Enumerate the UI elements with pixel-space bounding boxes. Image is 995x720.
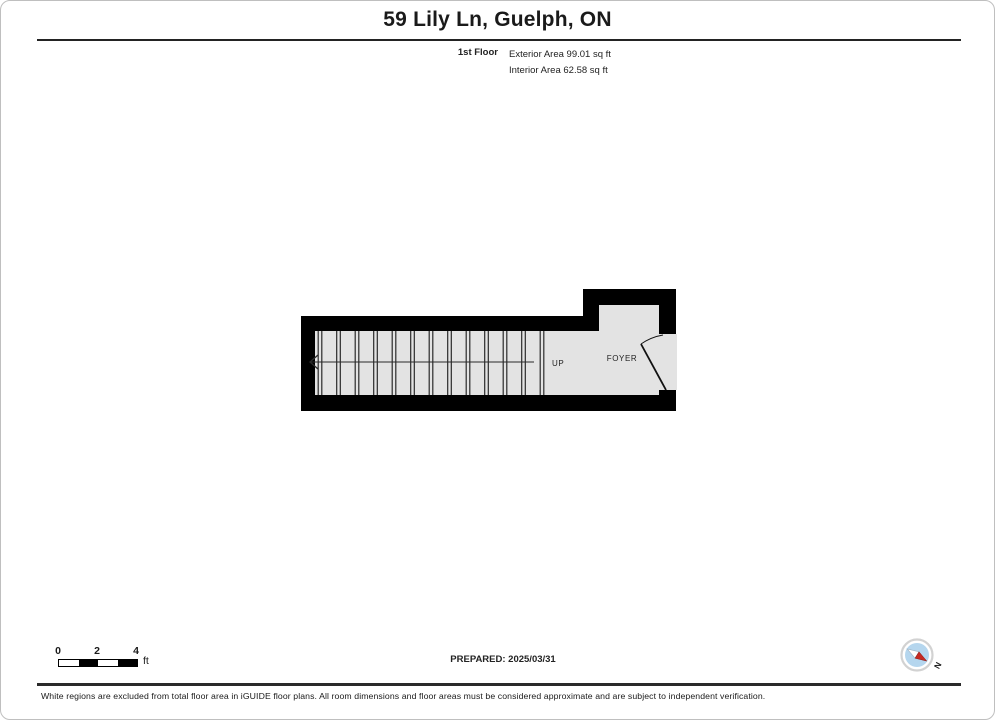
scale-segment — [98, 660, 118, 666]
foyer-label: FOYER — [607, 354, 638, 363]
header-divider — [37, 39, 961, 41]
floorplan-page: 59 Lily Ln, Guelph, ON 1st Floor Exterio… — [0, 0, 995, 720]
area-summary: Exterior Area 99.01 sq ft Interior Area … — [509, 47, 611, 78]
floorplan-drawing: UP FOYER — [296, 284, 686, 416]
scale-segment — [79, 660, 99, 666]
prepared-date: PREPARED: 2025/03/31 — [383, 654, 623, 665]
exterior-area: Exterior Area 99.01 sq ft — [509, 47, 611, 63]
scale-segment — [118, 660, 138, 666]
scale-unit-label: ft — [143, 655, 149, 667]
floor-label: 1st Floor — [1, 47, 498, 58]
scale-tick-0: 0 — [48, 645, 68, 657]
disclaimer-text: White regions are excluded from total fl… — [41, 691, 961, 701]
scale-tick-2: 2 — [87, 645, 107, 657]
footer-divider — [37, 683, 961, 686]
interior-area: Interior Area 62.58 sq ft — [509, 63, 611, 79]
scale-bar — [58, 659, 138, 667]
compass-north-label: N — [932, 660, 944, 670]
compass-icon: N — [898, 636, 946, 680]
scale-segment — [59, 660, 79, 666]
up-label: UP — [552, 359, 564, 368]
page-title: 59 Lily Ln, Guelph, ON — [1, 8, 994, 32]
